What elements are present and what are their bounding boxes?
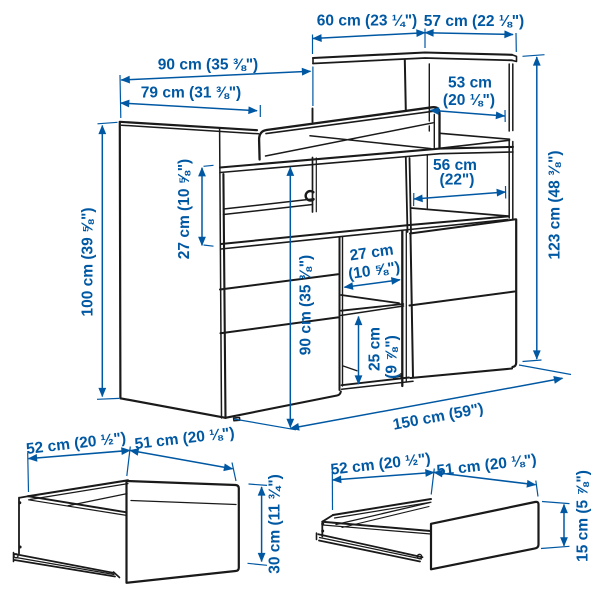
svg-text:53 cm: 53 cm — [448, 75, 492, 92]
svg-text:52 cm (20 ½"): 52 cm (20 ½") — [25, 430, 127, 458]
svg-text:123 cm (48 ⅜"): 123 cm (48 ⅜") — [547, 150, 564, 259]
svg-text:51 cm (20 ⅛"): 51 cm (20 ⅛") — [134, 425, 236, 453]
svg-text:57 cm (22 ⅛"): 57 cm (22 ⅛") — [424, 13, 524, 30]
svg-text:30 cm (11 ¾"): 30 cm (11 ¾") — [267, 474, 284, 574]
svg-text:90 cm (35 ⅜"): 90 cm (35 ⅜") — [158, 57, 258, 74]
svg-text:100 cm (39 ⅝"): 100 cm (39 ⅝") — [80, 207, 97, 316]
svg-text:(22"): (22") — [440, 172, 475, 189]
svg-text:(9 ⅞"): (9 ⅞") — [384, 335, 401, 379]
svg-text:27 cm (10 ⅝"): 27 cm (10 ⅝") — [176, 159, 193, 259]
svg-text:15 cm (5 ⅞"): 15 cm (5 ⅞") — [575, 470, 592, 562]
svg-text:60 cm (23 ¼"): 60 cm (23 ¼") — [317, 13, 417, 30]
svg-text:90 cm (35 ⅜"): 90 cm (35 ⅜") — [298, 255, 315, 355]
svg-text:(20 ⅛"): (20 ⅛") — [443, 92, 495, 109]
svg-text:150 cm (59"): 150 cm (59") — [392, 400, 485, 433]
svg-text:51 cm (20 ⅛"): 51 cm (20 ⅛") — [436, 451, 538, 479]
svg-text:25 cm: 25 cm — [367, 327, 384, 371]
svg-text:79 cm (31 ⅜"): 79 cm (31 ⅜") — [141, 85, 241, 102]
